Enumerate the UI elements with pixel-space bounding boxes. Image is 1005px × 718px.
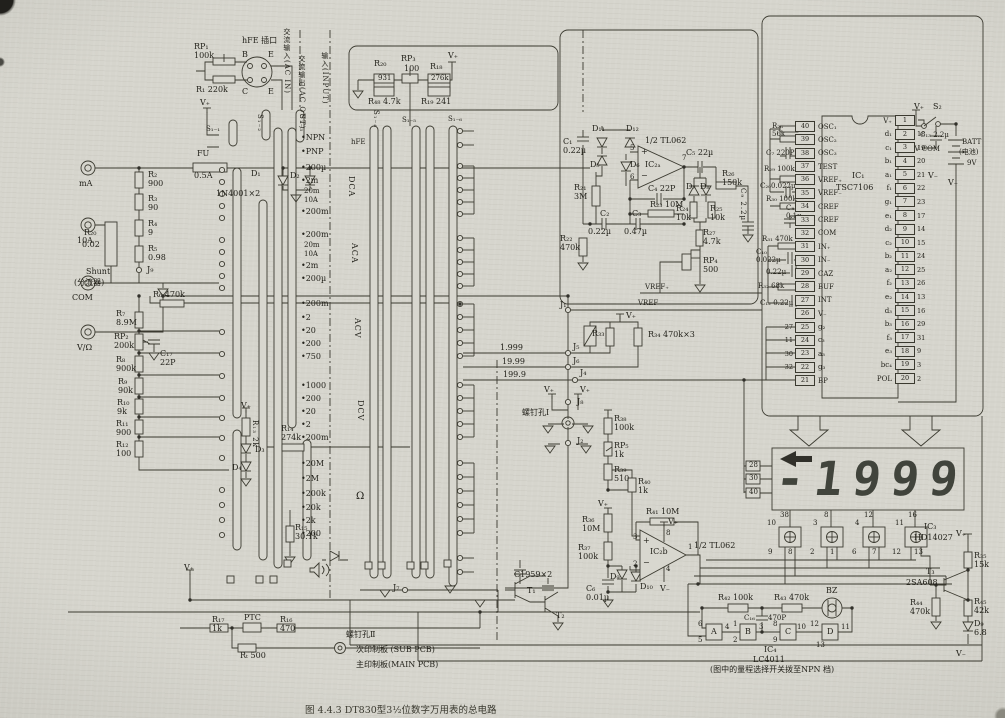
label: R₂₄ 10k [676, 205, 691, 223]
label: VREF₋ [638, 300, 662, 308]
label: Ω [356, 491, 364, 502]
label: 13 [816, 642, 825, 650]
label: 9 [773, 637, 777, 645]
label: 7 [872, 549, 876, 557]
pin-part: 23 [915, 198, 934, 206]
label: R₁₂ 100 [116, 441, 131, 459]
pad [378, 562, 385, 569]
ic1-pin-15: d₃1516 [866, 305, 934, 316]
label: VREF₊ [645, 284, 669, 292]
component-body [604, 442, 612, 456]
ic1-pin-27: 27INT [778, 295, 832, 306]
junction-dot [760, 606, 763, 609]
pin-part: a₃ [815, 350, 825, 358]
component-body [242, 418, 250, 436]
label: R₁ 220k [196, 86, 228, 95]
pin-part: 38 [795, 148, 815, 159]
ground-icon [695, 285, 705, 292]
ic1-pin-18: e₃189 [866, 346, 934, 357]
component-body [135, 399, 143, 414]
ic1-pin-22: 3222g₃ [778, 362, 825, 373]
label: C₂ [600, 210, 609, 219]
switch-bar [303, 440, 311, 560]
label: R₄₄ 470k [910, 599, 930, 617]
junction-dot [954, 122, 957, 125]
ground-icon [241, 479, 251, 486]
switch-contact [219, 179, 224, 184]
label: J₆ [573, 357, 579, 366]
label: R₂ 900 [148, 171, 163, 189]
label: 10 [797, 624, 806, 632]
ic1-pin-1: V₊1 [866, 115, 934, 126]
ic1-pin-38: 38OSC₃ [778, 148, 837, 159]
label: 100 [404, 65, 419, 74]
junction-dot [566, 294, 569, 297]
switch-contact [219, 455, 224, 460]
pad [365, 562, 372, 569]
label: HD14027 [914, 534, 953, 543]
diode-icon [241, 462, 251, 471]
label: R₉ 90k [118, 378, 133, 396]
label: ACA [349, 243, 358, 264]
pad [444, 560, 451, 567]
label: S₁₋₂ [255, 114, 263, 132]
pad [270, 576, 277, 583]
switch-contact [219, 502, 224, 507]
pin-part: a₂ [866, 266, 895, 274]
pin-part: V₋ [815, 310, 827, 318]
label: •PNP [301, 148, 323, 157]
switch-bar [412, 126, 420, 578]
junction-circle [136, 267, 141, 272]
junction-circle [565, 440, 570, 445]
switch-contact [457, 271, 462, 276]
ic1-pin-21: 21BP [778, 375, 828, 386]
label: R₇ 8.9M [116, 310, 137, 328]
label: 13 [914, 549, 923, 557]
pin-part: 10 [895, 237, 915, 248]
pin-part: 26 [915, 279, 934, 287]
component-body [105, 222, 117, 266]
label: R₁₉ 241 [421, 98, 451, 107]
label: S₁₋₄ [371, 110, 379, 128]
switch-contact [457, 382, 462, 387]
label: J₅ [573, 343, 579, 352]
label: 0.5A [194, 172, 213, 181]
label: D₁₂ [626, 125, 639, 134]
diode-icon [963, 622, 973, 631]
pin-part: POL [866, 375, 895, 383]
component-body [374, 87, 394, 96]
label: •200µ [301, 164, 326, 173]
label: 1 [733, 621, 737, 629]
pin-part: c₂ [866, 239, 895, 247]
bus-arrow-right-icon [902, 416, 940, 446]
label: A [711, 628, 717, 637]
component-body [428, 87, 450, 96]
label: S₁₋₅ [402, 117, 416, 125]
label: R₁₈ [430, 63, 442, 72]
label: •1000 [301, 382, 326, 391]
pin-part: CREF [815, 203, 839, 211]
label: PTC [244, 614, 261, 623]
ic1-pin-12: a₂1225 [866, 264, 934, 275]
label: S₂ [933, 103, 942, 112]
label: R₄₅ 42k [974, 598, 989, 616]
junction-dot [478, 610, 481, 613]
label: •20k [301, 504, 321, 513]
label: C₁₇ 22P [160, 350, 176, 368]
label: R₃ 90 [148, 195, 158, 213]
component-body [648, 210, 674, 217]
ic1-pin-7: g₁723 [866, 196, 934, 207]
switch-contact [457, 395, 462, 400]
pin-part: BP [815, 377, 828, 385]
label: RP₃ [401, 55, 416, 64]
switch-contact [219, 203, 224, 208]
label: + [643, 537, 650, 546]
label: R₁₀ 9k [117, 399, 129, 417]
component-body [592, 186, 600, 206]
junction-circle [572, 377, 577, 382]
switch-bar [233, 168, 241, 418]
pin-part: 21 [915, 171, 934, 179]
label: hFE 插口 [242, 37, 277, 46]
label: 10A [304, 197, 318, 205]
pin-part: 30 [778, 350, 795, 358]
ic1-pin-23: 3023a₃ [778, 348, 825, 359]
label: 输入(INPUT) [320, 52, 328, 105]
label: 8 [666, 530, 670, 538]
component-body [135, 420, 143, 434]
ground-icon [380, 590, 390, 597]
label: V₋ [948, 179, 958, 188]
ic1-pin-28: 28BUF [778, 281, 834, 292]
label: R₁₅ 30.1k [295, 524, 318, 542]
buzzer-icon [822, 598, 842, 618]
label: Rₜ 500 [240, 652, 266, 661]
pin-part: 1 [895, 115, 915, 126]
pin-part: 4 [895, 156, 915, 167]
label: J₂ [577, 437, 583, 446]
pin-part: CREF [815, 216, 839, 224]
label: V₋ [956, 650, 966, 659]
label: 1/2 TL062 [694, 542, 735, 551]
label: 28 [749, 462, 758, 470]
label: C₁₀ 0.022µ [756, 249, 781, 265]
pin-part: TEST [815, 163, 837, 171]
pin-part: 6 [895, 183, 915, 194]
junction-dot [137, 329, 140, 332]
component-body [964, 600, 972, 616]
ic1-pin-10: c₂1015 [866, 237, 934, 248]
pin-part: 27 [778, 323, 795, 331]
switch-contact [219, 261, 224, 266]
label: FU [197, 150, 209, 159]
ic1-pin-34: 34CREF [778, 201, 839, 212]
label: DCA [346, 176, 355, 197]
component-body [135, 172, 143, 188]
switch-contact [219, 273, 224, 278]
label: E [268, 51, 274, 60]
switch-contact [219, 329, 224, 334]
switch-contact [219, 285, 224, 290]
junction-circle [565, 350, 570, 355]
label: R₁₃ 2k [250, 420, 258, 448]
label: R₂₆ 150k [722, 170, 742, 188]
label: 6 [852, 549, 856, 557]
label: •200 [301, 395, 321, 404]
bus-arrow-left-icon [790, 416, 828, 446]
pin-part: OSC₁ [815, 123, 837, 131]
pin-part: 14 [895, 292, 915, 303]
pin-part: 22 [795, 362, 815, 373]
label: 6 [630, 174, 634, 182]
label: IC₂b [650, 548, 668, 557]
pin-part: bc₄ [866, 361, 895, 369]
label: R₂₁ 3M [574, 184, 587, 202]
label: S₁₋₃ [297, 114, 305, 132]
switch-contact [457, 434, 462, 439]
pin-part: 26 [795, 308, 815, 319]
label: •200m [301, 300, 329, 309]
label: R₂₂ 470k [560, 235, 580, 253]
label: 11 [895, 520, 904, 528]
pin-part: 15 [895, 305, 915, 316]
switch-contact [457, 175, 462, 180]
label: R₃₉ 510 [614, 466, 629, 484]
ground-icon [581, 446, 591, 453]
label: 9 [768, 549, 772, 557]
label: − [641, 172, 648, 181]
pin-part: b₁ [866, 157, 895, 165]
pin-part: d₂ [866, 225, 895, 233]
pin-part: 24 [795, 335, 815, 346]
pad [407, 562, 414, 569]
label: R₅ 0.98 [148, 245, 166, 263]
pin-part: 13 [895, 278, 915, 289]
component-body [213, 76, 235, 83]
junction-circle [565, 364, 570, 369]
label: C₁₆ [744, 615, 755, 623]
label: 2 [733, 637, 737, 645]
label: BZ [826, 587, 837, 596]
label: 螺钉孔Ⅰ [522, 409, 549, 418]
label: D [827, 628, 833, 637]
ic1-pin-5: a₁521 [866, 169, 934, 180]
label: •2 [301, 314, 311, 323]
label: 4 [855, 520, 859, 528]
label: V₋ [660, 585, 670, 594]
switch-contact [457, 460, 462, 465]
switch-contact [457, 408, 462, 413]
label: 1 [688, 544, 692, 552]
label: 20m [304, 188, 320, 196]
label: IC₄ [764, 646, 777, 655]
pin-part: 3 [895, 142, 915, 153]
wires-t3 [930, 536, 968, 644]
junction-circle [402, 587, 407, 592]
pin-part: 35 [795, 188, 815, 199]
pin-part: e₂ [866, 293, 895, 301]
pin-part: d₃ [866, 307, 895, 315]
component-body [690, 202, 697, 218]
pin-part: 18 [895, 346, 915, 357]
label: 螺钉孔Ⅱ [346, 631, 375, 640]
label: T₁ [527, 587, 536, 596]
pin-part: 34 [795, 201, 815, 212]
switch-contact [219, 215, 224, 220]
label: 11 [841, 624, 850, 632]
label: V₊ [914, 103, 924, 112]
component-body [282, 444, 304, 451]
label: 5 [698, 637, 702, 645]
junction-dot [606, 564, 609, 567]
label: IC₂ₐ [645, 161, 661, 170]
switch-contact [457, 259, 462, 264]
label: 20m [304, 242, 320, 250]
ic1-pin-26: 26V₋ [778, 308, 827, 319]
ic1-pin-3: c₁319 [866, 142, 934, 153]
ic1-pin-37: 37TEST [778, 161, 837, 172]
switch-contact [457, 235, 462, 240]
label: R₂₀ [84, 229, 96, 238]
label: C₆ 0.01µ [586, 585, 609, 603]
ground-icon [543, 426, 553, 433]
label: + [641, 148, 648, 157]
pin-part: 36 [795, 174, 815, 185]
pin-part: COM [815, 229, 836, 237]
label: V/Ω [77, 344, 92, 353]
label: 0.22µ [588, 228, 611, 237]
pin-part: 40 [795, 121, 815, 132]
component-body [135, 194, 143, 210]
label: V₊ [956, 530, 966, 539]
junction-dot [606, 488, 609, 491]
label: R₃₆ 10M [582, 516, 600, 534]
component-body [243, 623, 261, 632]
junction-dot [850, 606, 853, 609]
label: 2 [810, 549, 814, 557]
label: R₂₅ 10k [710, 205, 725, 223]
screw-hole-2-icon [335, 643, 346, 654]
pin-part: f₁ [866, 184, 895, 192]
label: 6 [698, 621, 702, 629]
label: R₁₆ 470 [280, 616, 295, 634]
pin-part: 22 [915, 184, 934, 192]
label: B [242, 51, 248, 60]
ic1-pin-16: b₃1629 [866, 319, 934, 330]
label: RP₄ 500 [703, 257, 718, 275]
lcd-reading: -1999 [773, 452, 964, 508]
component-body [160, 300, 184, 307]
pin-part: OSC₂ [815, 136, 837, 144]
label: D₇ [686, 183, 696, 192]
component-body [135, 441, 143, 457]
label: (图中的量程选择开关拨至NPN 档) [710, 666, 834, 675]
pin-part: 16 [895, 319, 915, 330]
label: V₊ [668, 518, 678, 527]
switch-contact [457, 353, 462, 358]
label: 8 [788, 549, 792, 557]
pin-part: a₁ [866, 171, 895, 179]
label: •200k [301, 490, 326, 499]
label: D₉ 6.8 [974, 620, 987, 638]
scanned-schematic-page: { "caption": "图 4.4.3 DT830型3½位数字万用表的总电路… [0, 0, 1005, 718]
label: V₊ [241, 402, 251, 411]
ic1-pin-31: 31IN₊ [778, 241, 831, 252]
ic1-pin-19: bc₄193 [866, 359, 934, 370]
label: E [268, 88, 274, 97]
switch-contact [219, 532, 224, 537]
pin-part: 29 [795, 268, 815, 279]
component-body [964, 552, 972, 568]
ic1-pin-24: 1124c₃ [778, 335, 825, 346]
label: C₁ 0.22µ [563, 138, 586, 156]
component-body [604, 464, 612, 480]
pin-part: 27 [795, 295, 815, 306]
label: C [242, 88, 248, 97]
switch-contact [457, 530, 462, 535]
label: V₊ [200, 99, 210, 108]
label: RP₅ 1k [614, 442, 629, 460]
junction-dot [137, 373, 140, 376]
label: J₁ [560, 301, 566, 310]
ground-icon [545, 446, 555, 453]
label: 1/2 TL062 [645, 137, 686, 146]
switch-bar [259, 200, 267, 560]
label: 2SA608 [906, 579, 938, 588]
label: (电池) [959, 149, 978, 157]
component-body [728, 604, 748, 612]
label: 12 [892, 549, 901, 557]
component-body [696, 230, 703, 246]
label: 40 [749, 489, 758, 497]
switch-bar [449, 126, 457, 586]
switch-bar [233, 430, 241, 550]
junction-dot [966, 568, 969, 571]
ic1-pin-40: 40OSC₁ [778, 121, 837, 132]
label: R₁₇ 1k [212, 616, 224, 634]
pin-part: IN₊ [815, 243, 831, 251]
label: R₄ 9 [148, 220, 157, 238]
switch-bar [274, 128, 282, 568]
component-body [782, 604, 802, 612]
ground-icon [553, 623, 563, 630]
diode-icon [597, 138, 607, 147]
ic1-pin-11: b₂1124 [866, 251, 934, 262]
label: V₊ [580, 386, 590, 395]
hfe-socket-icon [242, 57, 272, 87]
speaker-icon [310, 563, 329, 577]
switch-contact [219, 487, 224, 492]
ground-icon [743, 235, 753, 242]
ic1-pin-2: d₁218 [866, 129, 934, 140]
pin-part: 37 [795, 161, 815, 172]
pin-part: g₂ [815, 323, 825, 331]
label: J₈ [577, 398, 583, 407]
label: •NPN [301, 134, 325, 143]
label: D₁₀ [640, 583, 653, 592]
label: 主印制板(MAIN PCB) [356, 661, 438, 670]
pin-part: CAZ [815, 270, 833, 278]
label: V₊ [544, 386, 554, 395]
label: 2 [633, 561, 637, 569]
component-body [634, 328, 642, 346]
label: J₄ [580, 369, 586, 378]
label: LC4011 [753, 656, 785, 665]
junction-dot [458, 302, 461, 305]
